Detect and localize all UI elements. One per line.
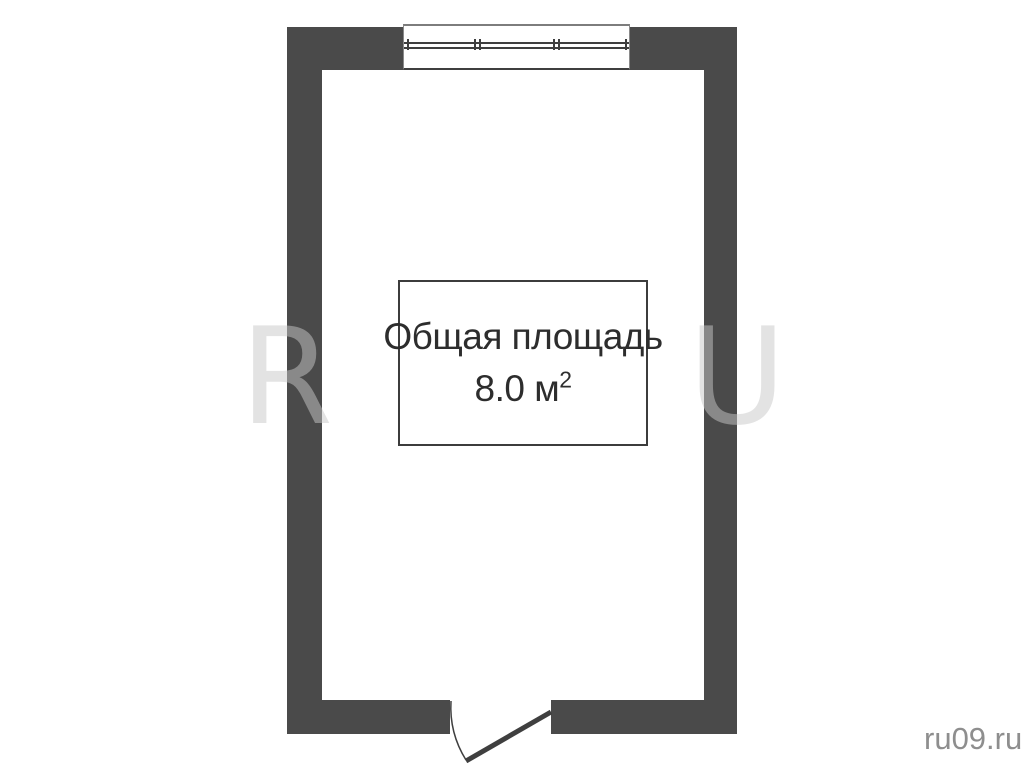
- window-mullion-tick: [479, 39, 481, 50]
- window-glass-line: [404, 47, 629, 49]
- floor-plan-canvas: R U Общая площадь 8.0 м2 ru09.ru: [0, 0, 1024, 768]
- area-unit: м: [534, 368, 559, 409]
- window-mullion-tick: [407, 39, 409, 50]
- area-superscript: 2: [559, 367, 571, 393]
- door-swing-arc: [451, 701, 466, 760]
- area-value-line: 8.0 м2: [475, 368, 572, 410]
- window-mullion-tick: [558, 39, 560, 50]
- bottom-wall-left: [287, 700, 450, 734]
- watermark-letter-right: U: [688, 310, 786, 444]
- area-value: 8.0: [475, 368, 525, 409]
- bottom-wall-right: [551, 700, 737, 734]
- window-symbol: [403, 24, 630, 70]
- top-wall-left: [287, 27, 403, 70]
- area-label-box: Общая площадь 8.0 м2: [398, 280, 648, 446]
- watermark-letter-left: R: [240, 310, 333, 444]
- door-symbol: [440, 690, 570, 768]
- window-mullion-tick: [553, 39, 555, 50]
- window-glass-line: [404, 42, 629, 44]
- window-mullion-tick: [625, 39, 627, 50]
- window-mullion-tick: [474, 39, 476, 50]
- area-title: Общая площадь: [383, 316, 662, 358]
- site-watermark: ru09.ru: [924, 721, 1022, 757]
- door-leaf: [466, 712, 551, 761]
- top-wall-right: [630, 27, 737, 70]
